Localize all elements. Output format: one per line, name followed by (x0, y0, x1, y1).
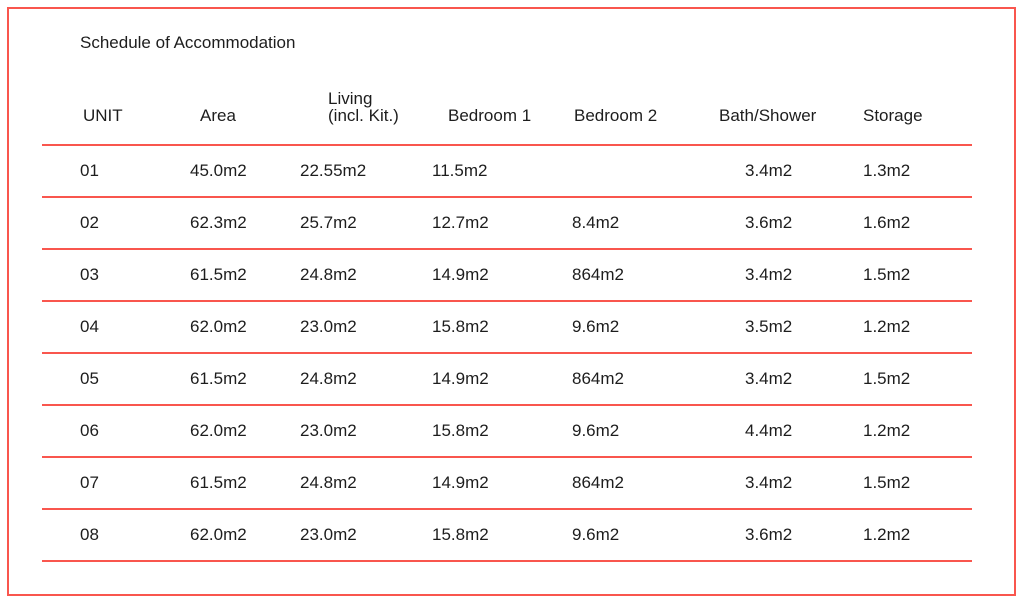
table-row: 0145.0m222.55m211.5m23.4m21.3m2 (42, 146, 972, 198)
cell-storage: 1.6m2 (863, 213, 972, 233)
table-row: 0662.0m223.0m215.8m29.6m24.4m21.2m2 (42, 406, 972, 458)
cell-living: 25.7m2 (300, 213, 432, 233)
cell-bedroom2: 9.6m2 (572, 525, 745, 545)
column-header-bedroom1: Bedroom 1 (448, 107, 574, 124)
table-row: 0262.3m225.7m212.7m28.4m23.6m21.6m2 (42, 198, 972, 250)
cell-storage: 1.5m2 (863, 369, 972, 389)
cell-area: 62.0m2 (190, 525, 300, 545)
cell-bath-shower: 4.4m2 (745, 421, 863, 441)
cell-storage: 1.5m2 (863, 265, 972, 285)
column-header-storage: Storage (863, 107, 972, 124)
cell-living: 24.8m2 (300, 265, 432, 285)
table-row: 0462.0m223.0m215.8m29.6m23.5m21.2m2 (42, 302, 972, 354)
table-body: 0145.0m222.55m211.5m23.4m21.3m20262.3m22… (42, 144, 972, 562)
cell-storage: 1.2m2 (863, 421, 972, 441)
cell-unit: 04 (80, 317, 190, 337)
table-header-row: UNIT Area Living (incl. Kit.) Bedroom 1 … (42, 64, 972, 124)
cell-bath-shower: 3.6m2 (745, 213, 863, 233)
cell-bath-shower: 3.4m2 (745, 473, 863, 493)
cell-unit: 07 (80, 473, 190, 493)
table-row: 0862.0m223.0m215.8m29.6m23.6m21.2m2 (42, 510, 972, 562)
cell-storage: 1.2m2 (863, 317, 972, 337)
cell-bedroom2: 8.4m2 (572, 213, 745, 233)
table-row: 0361.5m224.8m214.9m2864m23.4m21.5m2 (42, 250, 972, 302)
cell-area: 61.5m2 (190, 473, 300, 493)
schedule-of-accommodation-page: Schedule of Accommodation UNIT Area Livi… (0, 0, 1023, 603)
cell-bedroom1: 11.5m2 (432, 161, 572, 181)
cell-bedroom1: 15.8m2 (432, 317, 572, 337)
column-header-living-line1: Living (328, 90, 448, 107)
cell-storage: 1.3m2 (863, 161, 972, 181)
cell-area: 45.0m2 (190, 161, 300, 181)
cell-bedroom1: 14.9m2 (432, 473, 572, 493)
cell-living: 23.0m2 (300, 525, 432, 545)
cell-bath-shower: 3.4m2 (745, 265, 863, 285)
cell-bath-shower: 3.4m2 (745, 161, 863, 181)
cell-unit: 01 (80, 161, 190, 181)
cell-living: 23.0m2 (300, 317, 432, 337)
cell-living: 23.0m2 (300, 421, 432, 441)
cell-living: 24.8m2 (300, 369, 432, 389)
cell-storage: 1.5m2 (863, 473, 972, 493)
cell-area: 61.5m2 (190, 265, 300, 285)
cell-bedroom1: 15.8m2 (432, 421, 572, 441)
cell-bedroom1: 14.9m2 (432, 369, 572, 389)
cell-area: 62.0m2 (190, 421, 300, 441)
cell-bedroom2: 864m2 (572, 369, 745, 389)
cell-unit: 02 (80, 213, 190, 233)
table-row: 0761.5m224.8m214.9m2864m23.4m21.5m2 (42, 458, 972, 510)
cell-bedroom1: 12.7m2 (432, 213, 572, 233)
cell-unit: 06 (80, 421, 190, 441)
cell-bath-shower: 3.6m2 (745, 525, 863, 545)
cell-bedroom1: 15.8m2 (432, 525, 572, 545)
cell-bedroom2: 864m2 (572, 265, 745, 285)
column-header-living: Living (incl. Kit.) (328, 90, 448, 124)
page-title: Schedule of Accommodation (80, 33, 295, 53)
column-header-bedroom2: Bedroom 2 (574, 107, 719, 124)
cell-living: 24.8m2 (300, 473, 432, 493)
cell-area: 62.3m2 (190, 213, 300, 233)
cell-bedroom2: 864m2 (572, 473, 745, 493)
cell-bedroom2: 9.6m2 (572, 421, 745, 441)
cell-unit: 03 (80, 265, 190, 285)
cell-living: 22.55m2 (300, 161, 432, 181)
column-header-living-line2: (incl. Kit.) (328, 107, 448, 124)
cell-area: 61.5m2 (190, 369, 300, 389)
cell-bath-shower: 3.4m2 (745, 369, 863, 389)
column-header-bath-shower: Bath/Shower (719, 107, 863, 124)
table-row: 0561.5m224.8m214.9m2864m23.4m21.5m2 (42, 354, 972, 406)
cell-storage: 1.2m2 (863, 525, 972, 545)
column-header-area: Area (200, 107, 328, 124)
cell-area: 62.0m2 (190, 317, 300, 337)
column-header-unit: UNIT (83, 107, 200, 124)
cell-bath-shower: 3.5m2 (745, 317, 863, 337)
cell-bedroom1: 14.9m2 (432, 265, 572, 285)
cell-unit: 05 (80, 369, 190, 389)
cell-bedroom2: 9.6m2 (572, 317, 745, 337)
cell-unit: 08 (80, 525, 190, 545)
